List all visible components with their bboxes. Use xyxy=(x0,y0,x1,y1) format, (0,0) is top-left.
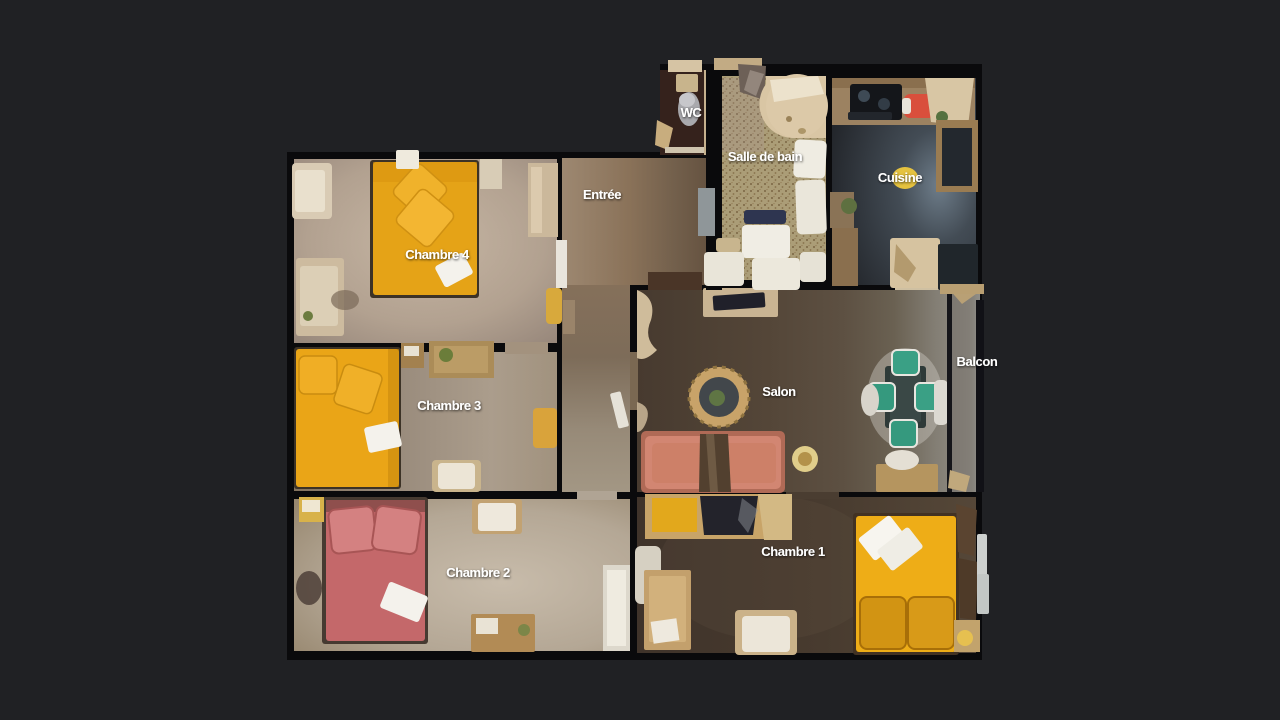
svg-text:Entrée: Entrée xyxy=(583,187,621,202)
svg-text:WC: WC xyxy=(681,105,703,120)
svg-text:Salon: Salon xyxy=(762,384,796,399)
svg-text:Chambre 1: Chambre 1 xyxy=(761,544,825,559)
svg-text:Chambre 3: Chambre 3 xyxy=(417,398,481,413)
svg-text:Chambre 4: Chambre 4 xyxy=(405,247,470,262)
svg-text:Chambre 2: Chambre 2 xyxy=(446,565,510,580)
svg-text:Salle de bain: Salle de bain xyxy=(728,149,803,164)
svg-text:Cuisine: Cuisine xyxy=(878,170,922,185)
svg-text:Balcon: Balcon xyxy=(957,354,998,369)
